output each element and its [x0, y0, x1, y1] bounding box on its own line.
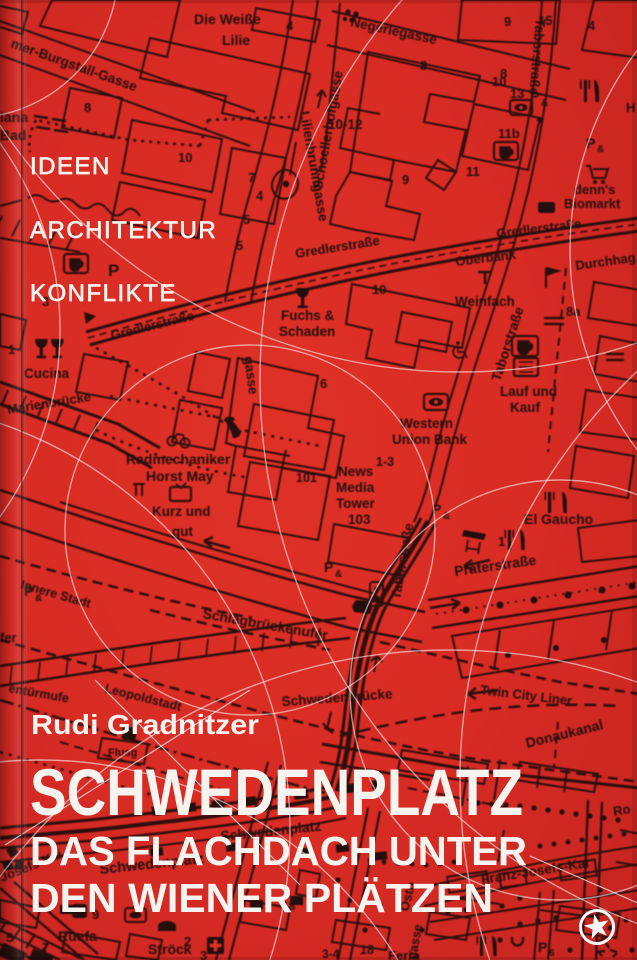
- svg-text:&: &: [335, 569, 342, 580]
- svg-text:denn's: denn's: [574, 182, 615, 197]
- svg-text:13: 13: [510, 86, 524, 101]
- svg-text:5: 5: [243, 212, 250, 227]
- svg-text:10: 10: [492, 74, 506, 89]
- svg-text:1: 1: [498, 534, 505, 549]
- svg-text:4: 4: [256, 188, 264, 203]
- svg-text:8: 8: [84, 100, 91, 115]
- svg-text:Fuchs &: Fuchs &: [281, 308, 335, 323]
- svg-text:Horst May: Horst May: [146, 468, 214, 484]
- svg-text:8: 8: [420, 58, 427, 73]
- svg-text:101: 101: [296, 471, 317, 485]
- svg-text:Ro: Ro: [612, 801, 632, 819]
- svg-text:Ströck: Ströck: [148, 941, 192, 957]
- svg-text:&: &: [597, 144, 604, 155]
- svg-text:1-3: 1-3: [376, 455, 394, 469]
- svg-text:103: 103: [348, 512, 371, 527]
- svg-text:Kauf: Kauf: [510, 400, 541, 415]
- svg-text:Die Weiße: Die Weiße: [194, 11, 261, 27]
- svg-text:IDEEN: IDEEN: [30, 153, 111, 180]
- svg-text:DEN WIENER PLÄTZEN: DEN WIENER PLÄTZEN: [30, 875, 493, 921]
- svg-text:Rudi Gradnitzer: Rudi Gradnitzer: [31, 709, 259, 740]
- svg-text:Media: Media: [336, 480, 375, 495]
- svg-text:Radmechaniker: Radmechaniker: [126, 451, 231, 467]
- svg-text:8a: 8a: [566, 304, 581, 319]
- svg-text:15: 15: [538, 13, 552, 28]
- svg-text:ARCHITEKTUR: ARCHITEKTUR: [30, 217, 217, 244]
- svg-text:DAS FLACHDACH UNTER: DAS FLACHDACH UNTER: [30, 828, 527, 874]
- svg-text:El Gaucho: El Gaucho: [524, 511, 593, 527]
- svg-text:P: P: [324, 559, 333, 575]
- svg-text:9: 9: [402, 172, 409, 187]
- svg-text:11b: 11b: [498, 126, 520, 141]
- svg-text:Tower: Tower: [336, 496, 375, 511]
- svg-text:KONFLIKTE: KONFLIKTE: [30, 280, 177, 307]
- svg-text:4: 4: [588, 18, 596, 33]
- svg-text:Western: Western: [400, 416, 453, 431]
- svg-text:5: 5: [236, 238, 243, 253]
- svg-text:&: &: [541, 98, 548, 109]
- svg-text:9: 9: [504, 14, 511, 29]
- svg-text:Schaden: Schaden: [279, 324, 335, 339]
- svg-text:10: 10: [372, 282, 386, 297]
- svg-text:P: P: [538, 939, 547, 955]
- svg-text:Weinfach: Weinfach: [455, 294, 515, 309]
- svg-text:6: 6: [320, 376, 327, 391]
- svg-text:&: &: [35, 593, 42, 604]
- svg-text:Lilie: Lilie: [222, 32, 250, 48]
- svg-text:SCHWEDENPLATZ: SCHWEDENPLATZ: [30, 755, 523, 829]
- svg-text:News: News: [338, 464, 373, 479]
- svg-text:Cucina: Cucina: [24, 366, 70, 381]
- svg-text:4: 4: [286, 18, 294, 33]
- svg-text:10: 10: [178, 150, 192, 165]
- svg-text:Lauf und: Lauf und: [500, 384, 557, 399]
- svg-text:Kurz und: Kurz und: [152, 504, 211, 519]
- svg-text:Union Bank: Union Bank: [392, 432, 467, 447]
- svg-text:11: 11: [466, 164, 480, 179]
- svg-text:P: P: [108, 261, 119, 280]
- svg-text:18: 18: [360, 943, 374, 957]
- svg-text:7: 7: [248, 170, 255, 185]
